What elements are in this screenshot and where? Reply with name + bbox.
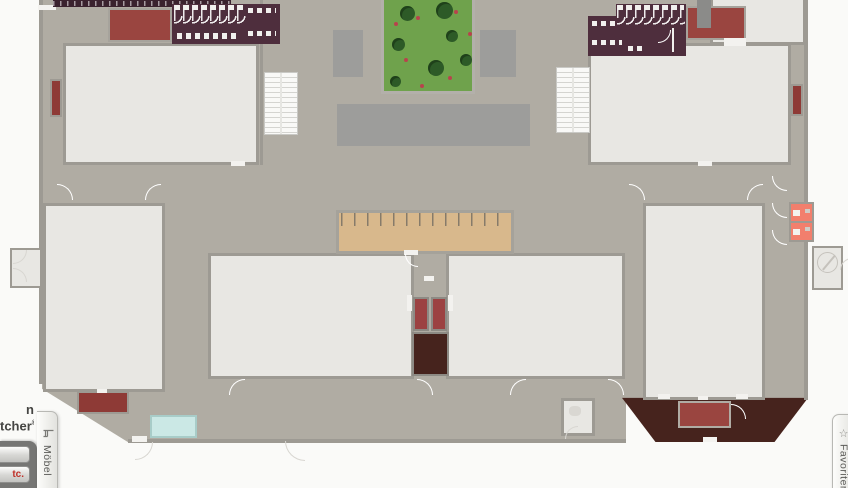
sinks-row-left-a[interactable]: [248, 8, 276, 13]
stall-doors-right[interactable]: [618, 5, 684, 10]
flower-icon: [416, 16, 420, 20]
flower-icon: [448, 76, 452, 80]
flower-icon: [394, 22, 398, 26]
app-logo-line2: tcher®: [0, 417, 34, 433]
mat-cyan[interactable]: [150, 415, 197, 438]
room-top-left: [63, 43, 259, 165]
outer-wall-bottom: [128, 439, 626, 443]
toilet-icon: [569, 406, 581, 416]
room-mid-right: [643, 203, 765, 400]
door-gap: [231, 161, 245, 166]
flower-icon: [468, 32, 472, 36]
door-gap-top-right: [724, 38, 746, 46]
toilet-icon: [793, 210, 800, 216]
tree-icon[interactable]: [392, 38, 405, 51]
wc-divider: [791, 221, 812, 223]
door-gap: [703, 437, 717, 442]
door-arc-exterior: [135, 442, 153, 460]
sinks-row-right-b[interactable]: [592, 40, 622, 45]
table-bottom-left[interactable]: [77, 391, 129, 414]
sinks-row-right-a[interactable]: [592, 21, 618, 26]
spiral-stairs-icon[interactable]: [817, 252, 838, 273]
app-logo: n tcher®: [0, 403, 34, 435]
stall-door-arcs-right: [617, 17, 685, 27]
sideboard-right-wall[interactable]: [791, 84, 803, 116]
tab-favorites[interactable]: ☆ Favoriten: [832, 414, 848, 488]
toolbar-button-2[interactable]: tc.: [0, 466, 30, 483]
vestibule-door-line: [672, 28, 674, 52]
door-gap: [97, 389, 107, 393]
tab-furniture-label: Möbel: [41, 445, 53, 476]
room-top-right: [588, 43, 791, 165]
tree-icon[interactable]: [400, 6, 415, 21]
door-gap: [736, 394, 748, 399]
stall-door-arcs-left: [174, 16, 246, 26]
bar-counter[interactable]: [336, 210, 514, 254]
toilet-icon: [793, 229, 800, 235]
flower-icon: [420, 84, 424, 88]
booth-red-left[interactable]: [413, 297, 429, 331]
tree-icon[interactable]: [460, 54, 472, 66]
room-small-bottom: [561, 398, 595, 436]
wall-block-top-right: [697, 0, 711, 28]
tab-favorites-label: Favoriten: [838, 444, 848, 488]
door-gap: [698, 161, 712, 166]
red-carpet-top-right[interactable]: [686, 6, 746, 40]
sinks-row-left-b[interactable]: [248, 31, 276, 36]
room-mid-left: [43, 203, 165, 392]
outer-wall-right: [804, 0, 808, 400]
floorplan-editor-canvas: n tcher® tc. Möbel ☆ Favoriten: [0, 0, 848, 488]
door-arc-exterior: [285, 441, 305, 461]
toilets-row-left[interactable]: [177, 33, 239, 39]
sink-icon: [805, 227, 810, 231]
room-bottom-right: [446, 253, 625, 379]
red-carpet-top-left[interactable]: [108, 8, 172, 42]
fixtures-row-right[interactable]: [628, 46, 644, 51]
flower-icon: [454, 10, 458, 14]
column-fixture-top: [424, 276, 434, 281]
toolbar-button-1[interactable]: [0, 446, 30, 463]
sideboard-left-wall[interactable]: [50, 79, 62, 117]
star-icon: ☆: [839, 429, 848, 440]
counter-seat-ticks: [341, 213, 509, 226]
tree-icon[interactable]: [446, 30, 458, 42]
column-fixture-left: [407, 295, 412, 311]
wc-cells-salmon[interactable]: [789, 202, 814, 242]
slab-top-left[interactable]: [333, 30, 363, 77]
tab-furniture[interactable]: Möbel: [37, 411, 58, 488]
slab-top-right[interactable]: [480, 30, 516, 77]
sink-icon: [805, 209, 810, 213]
door-gap: [698, 396, 708, 400]
tree-icon[interactable]: [390, 76, 401, 87]
registered-mark: ®: [32, 420, 34, 427]
flower-icon: [404, 58, 408, 62]
chair-icon: [40, 428, 55, 440]
column-fixture-right: [448, 295, 453, 311]
column-dark-brown-block[interactable]: [412, 332, 449, 376]
staircase-right[interactable]: [556, 67, 590, 133]
slab-center-stage[interactable]: [337, 104, 530, 146]
app-logo-line1: n: [0, 403, 34, 417]
booth-red-right[interactable]: [431, 297, 447, 331]
table-brown-room[interactable]: [678, 401, 731, 428]
bottom-left-toolbar-panel: tc.: [0, 441, 37, 488]
staircase-left[interactable]: [264, 72, 298, 135]
courtyard-garden: [381, 0, 475, 94]
tree-icon[interactable]: [428, 60, 444, 76]
door-gap: [658, 394, 670, 399]
room-bottom-left: [208, 253, 414, 379]
stall-doors-left[interactable]: [175, 5, 245, 10]
tree-icon[interactable]: [436, 2, 453, 19]
